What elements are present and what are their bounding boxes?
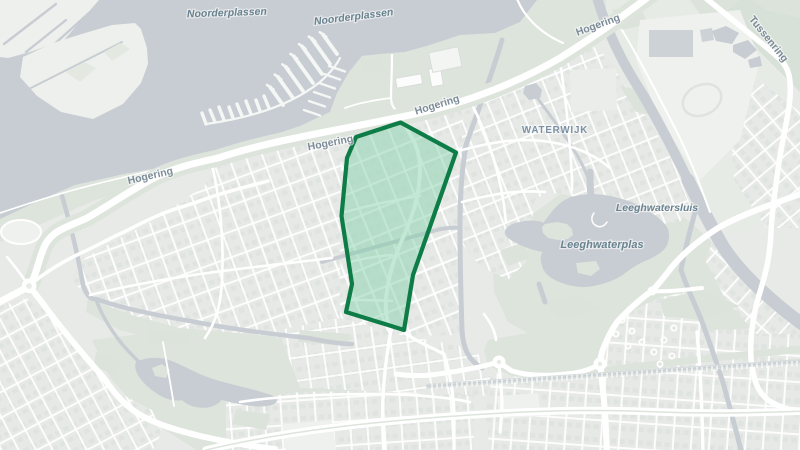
svg-text:Leeghwatersluis: Leeghwatersluis	[616, 202, 698, 214]
svg-text:Leeghwaterplas: Leeghwaterplas	[560, 239, 643, 251]
svg-text:WATERWIJK: WATERWIJK	[522, 125, 588, 136]
